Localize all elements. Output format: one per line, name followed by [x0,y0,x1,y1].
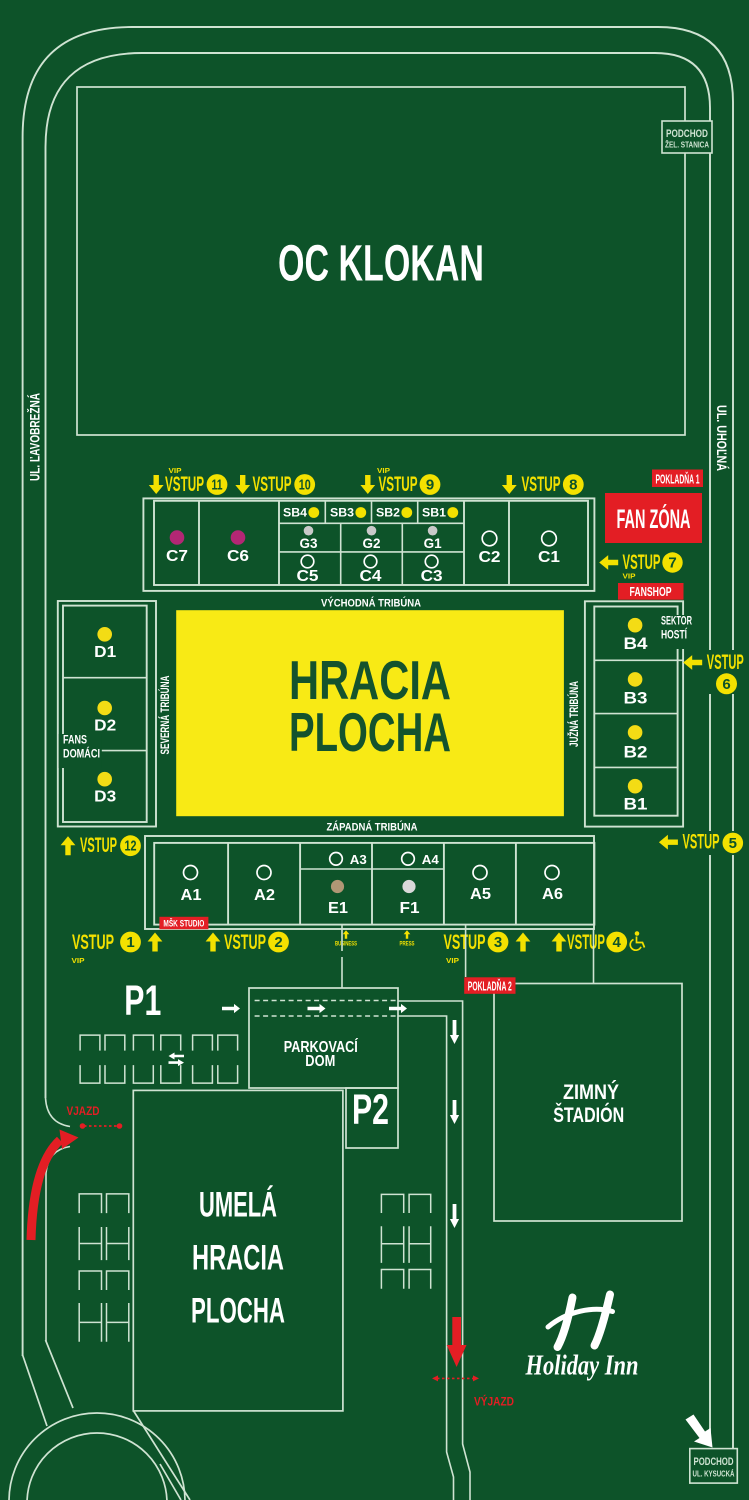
svg-text:VSTUP: VSTUP [253,473,292,496]
svg-text:JUŽNÁ TRIBÚNA: JUŽNÁ TRIBÚNA [568,681,581,747]
svg-text:A5: A5 [470,886,491,903]
svg-text:PODCHOD: PODCHOD [694,1456,734,1468]
svg-text:DOM: DOM [305,1053,335,1070]
svg-text:G1: G1 [424,536,442,551]
svg-text:VSTUP: VSTUP [72,931,114,954]
svg-text:6: 6 [722,676,730,693]
svg-text:P2: P2 [352,1086,389,1134]
svg-text:UL. KYSUCKÁ: UL. KYSUCKÁ [693,1470,735,1479]
svg-text:C7: C7 [166,548,188,565]
svg-text:C3: C3 [421,568,443,585]
svg-text:G3: G3 [300,536,318,551]
svg-text:SEVERNÁ TRIBÚNA: SEVERNÁ TRIBÚNA [159,676,172,755]
svg-text:VÝJAZD: VÝJAZD [474,1394,514,1409]
svg-text:MŠK STUDIO: MŠK STUDIO [163,917,204,928]
svg-text:FANS: FANS [63,735,87,747]
svg-text:C4: C4 [360,568,382,585]
svg-text:VSTUP: VSTUP [444,931,486,954]
svg-text:VSTUP: VSTUP [80,834,117,857]
svg-text:BUSINESS: BUSINESS [335,941,357,948]
svg-text:P1: P1 [124,977,161,1025]
svg-text:F1: F1 [400,900,420,917]
svg-text:E1: E1 [328,900,348,917]
svg-text:VIP: VIP [446,956,459,965]
svg-text:D1: D1 [94,644,116,661]
svg-text:C1: C1 [538,549,560,566]
svg-text:PRESS: PRESS [400,941,415,948]
svg-text:11: 11 [212,477,223,494]
svg-text:9: 9 [426,477,434,494]
svg-text:VJAZD: VJAZD [67,1104,100,1118]
svg-text:2: 2 [274,934,282,951]
svg-text:HOSTÍ: HOSTÍ [661,629,688,642]
svg-text:SB2: SB2 [376,506,400,520]
svg-text:5: 5 [729,835,737,852]
svg-text:SB4: SB4 [283,506,307,520]
svg-text:10: 10 [299,477,311,494]
svg-text:C2: C2 [479,549,501,566]
svg-text:VÝCHODNÁ TRIBÚNA: VÝCHODNÁ TRIBÚNA [321,597,421,610]
svg-text:7: 7 [668,555,676,572]
svg-text:8: 8 [569,477,577,494]
svg-text:VSTUP: VSTUP [707,651,744,674]
svg-text:UL. UHOĽNÁ: UL. UHOĽNÁ [714,405,730,471]
svg-text:A2: A2 [254,887,275,904]
svg-text:C5: C5 [297,568,319,585]
svg-text:VSTUP: VSTUP [522,473,561,496]
svg-text:VSTUP: VSTUP [165,473,204,496]
svg-text:B1: B1 [624,795,648,814]
svg-text:4: 4 [613,934,622,951]
svg-text:3: 3 [494,934,502,951]
svg-text:UMELÁ: UMELÁ [199,1185,277,1225]
svg-text:A4: A4 [422,852,440,867]
svg-text:B2: B2 [624,743,648,762]
svg-text:OC KLOKAN: OC KLOKAN [278,235,484,292]
svg-text:VSTUP: VSTUP [567,931,605,954]
svg-text:1: 1 [126,934,134,951]
svg-text:SB3: SB3 [330,506,354,520]
svg-text:ZIMNÝ: ZIMNÝ [563,1080,619,1104]
svg-text:SEKTOR: SEKTOR [661,616,692,628]
svg-text:VSTUP: VSTUP [224,931,266,954]
svg-text:Holiday Inn: Holiday Inn [525,1351,639,1382]
svg-text:FANSHOP: FANSHOP [630,585,672,599]
svg-text:A6: A6 [542,886,563,903]
svg-text:D2: D2 [94,718,116,735]
svg-text:FAN ZÓNA: FAN ZÓNA [617,503,691,534]
svg-text:G2: G2 [363,536,381,551]
svg-text:C6: C6 [227,548,249,565]
svg-text:VSTUP: VSTUP [683,831,720,854]
svg-text:A1: A1 [181,887,202,904]
svg-text:D3: D3 [94,789,116,806]
svg-text:B4: B4 [624,634,649,653]
svg-text:ŽEL. STANICA: ŽEL. STANICA [665,141,709,150]
svg-text:PLOCHA: PLOCHA [191,1292,285,1331]
svg-text:POKLADŇA 1: POKLADŇA 1 [656,471,700,486]
svg-text:B3: B3 [624,689,648,708]
svg-text:SB1: SB1 [422,506,446,520]
svg-text:DOMÁCI: DOMÁCI [63,748,100,761]
svg-text:PLOCHA: PLOCHA [289,701,451,763]
svg-text:ZÁPADNÁ TRIBÚNA: ZÁPADNÁ TRIBÚNA [327,821,418,834]
svg-text:VSTUP: VSTUP [379,473,418,496]
svg-text:12: 12 [125,838,137,855]
svg-text:VIP: VIP [623,572,636,581]
svg-text:VIP: VIP [72,956,85,965]
svg-text:ŠTADIÓN: ŠTADIÓN [553,1103,624,1127]
svg-text:UL. ĽAVOBREŽNÁ: UL. ĽAVOBREŽNÁ [26,393,43,481]
svg-text:POKLADŇA 2: POKLADŇA 2 [468,979,512,994]
svg-text:A3: A3 [350,852,367,867]
svg-text:PODCHOD: PODCHOD [666,128,708,140]
svg-text:HRACIA: HRACIA [192,1239,284,1278]
